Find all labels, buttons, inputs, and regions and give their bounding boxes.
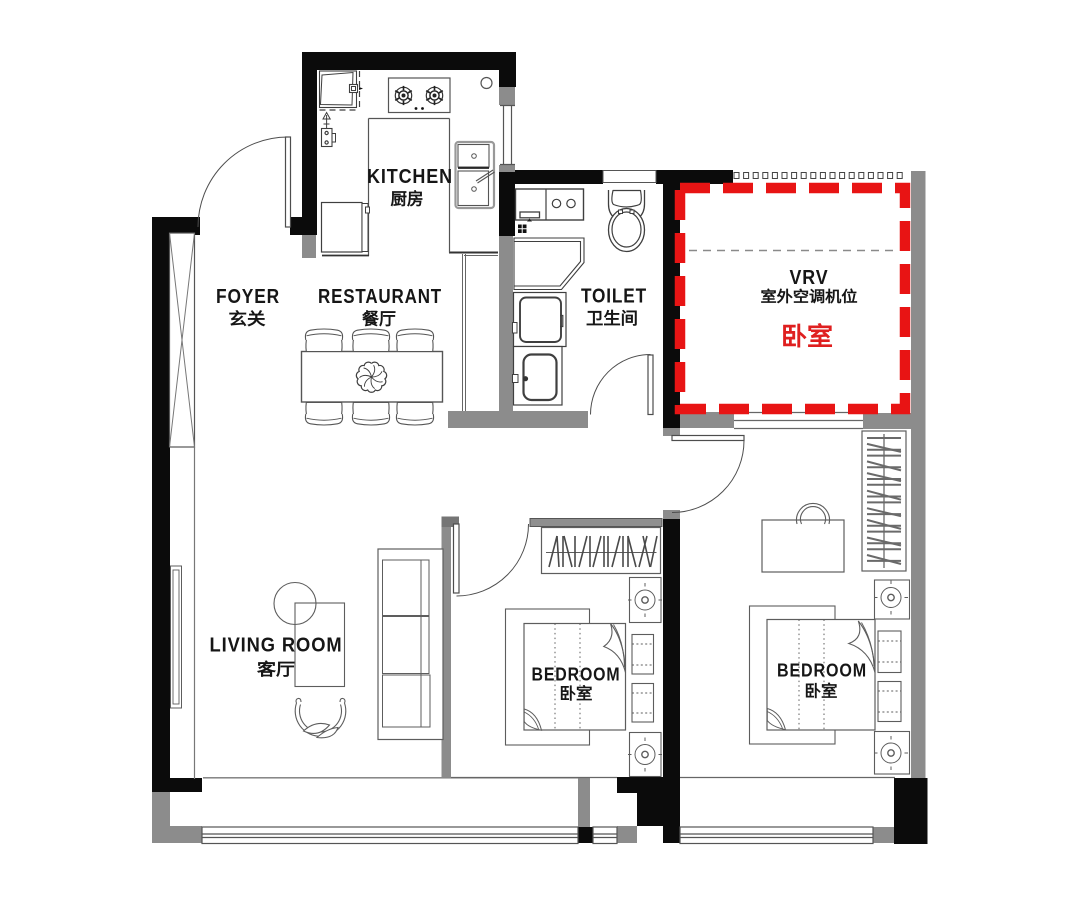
svg-text:RESTAURANT: RESTAURANT (318, 285, 442, 308)
svg-text:厨房: 厨房 (391, 189, 424, 209)
svg-text:TOILET: TOILET (581, 285, 647, 308)
svg-text:玄关: 玄关 (229, 309, 267, 329)
svg-text:卧室: 卧室 (560, 684, 593, 703)
svg-text:卧室: 卧室 (781, 322, 833, 351)
svg-text:VRV: VRV (790, 267, 829, 289)
svg-text:FOYER: FOYER (216, 285, 280, 308)
svg-text:餐厅: 餐厅 (362, 309, 397, 329)
svg-text:BEDROOM: BEDROOM (777, 660, 867, 681)
svg-text:LIVING ROOM: LIVING ROOM (210, 634, 343, 657)
svg-text:室外空调机位: 室外空调机位 (761, 288, 858, 306)
svg-text:客厅: 客厅 (256, 659, 296, 679)
svg-text:卧室: 卧室 (805, 682, 838, 701)
svg-text:卫生间: 卫生间 (586, 308, 638, 328)
svg-text:KITCHEN: KITCHEN (367, 165, 453, 188)
svg-text:BEDROOM: BEDROOM (532, 664, 621, 685)
